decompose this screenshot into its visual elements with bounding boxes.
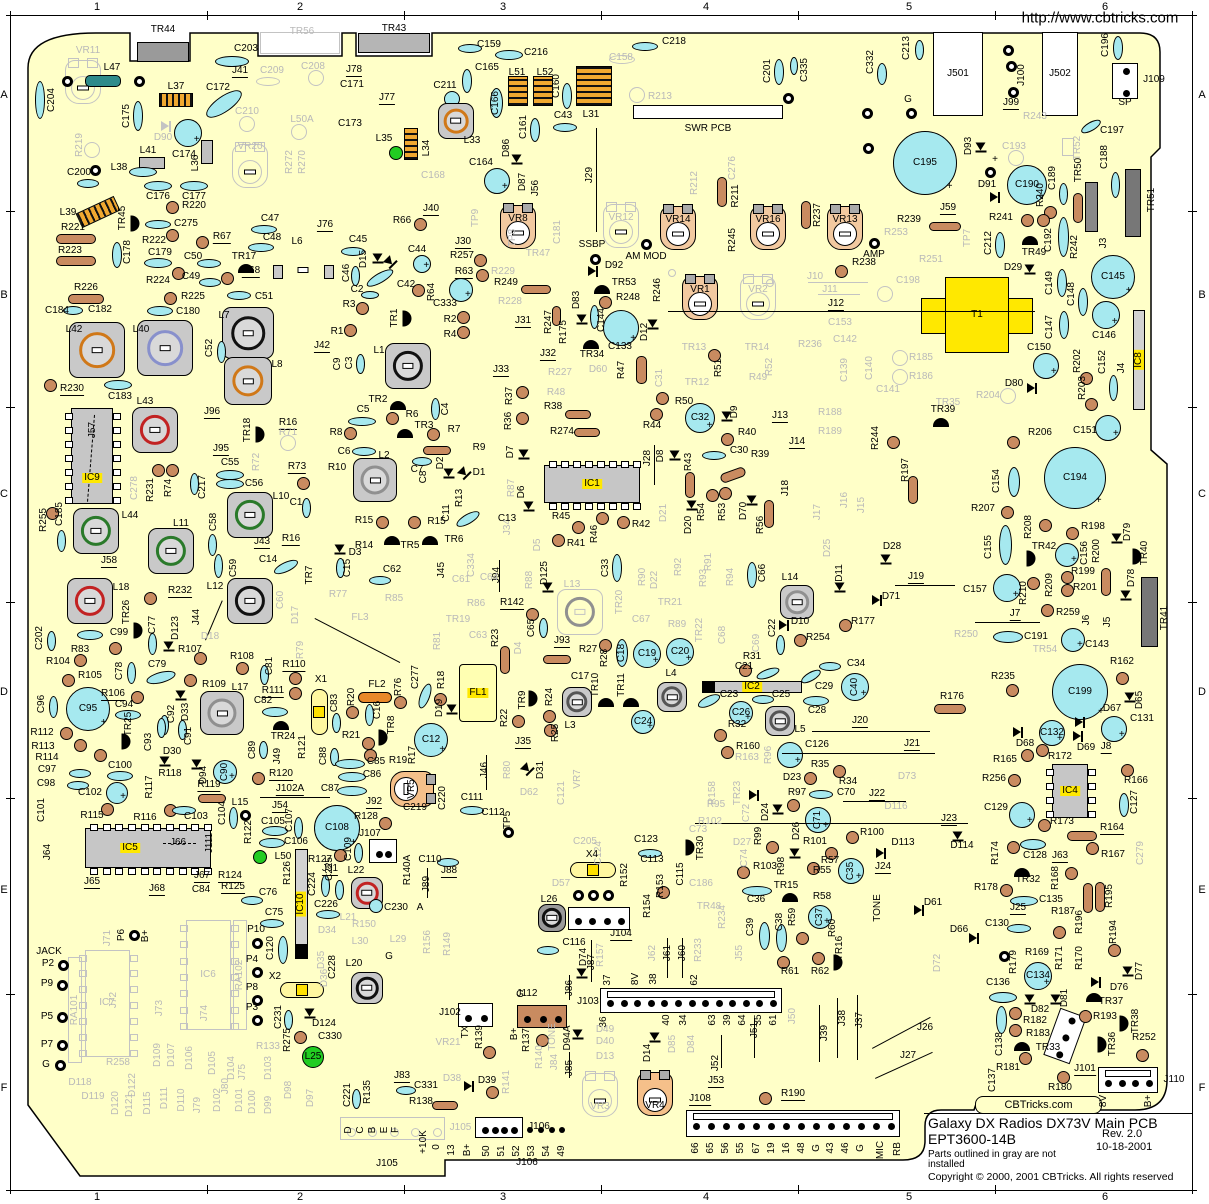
- grid-border: [798, 1185, 799, 1194]
- label-d29: D29: [1004, 263, 1022, 273]
- comp-cap-753: [1119, 793, 1129, 817]
- comp-r190-689: [759, 1092, 772, 1105]
- label-r199: R199: [1071, 567, 1095, 577]
- label-l25: L25: [305, 1052, 322, 1062]
- grid-col-1: 1: [94, 1, 100, 13]
- label-l15: L15: [232, 798, 249, 808]
- comp-r164-813: [1067, 831, 1097, 841]
- label-r224: R224: [146, 276, 170, 286]
- label-r258: R258: [106, 1058, 130, 1068]
- label-r103: R103: [753, 862, 777, 872]
- label-r112: R112: [30, 728, 53, 738]
- comp-ic5-333: [85, 828, 211, 868]
- grid-row-B: B: [0, 289, 7, 301]
- comp-r208-774: [1039, 519, 1052, 532]
- label-r195: R195: [1105, 884, 1115, 908]
- label-j76: J76: [317, 220, 333, 232]
- label-l8: L8: [271, 360, 282, 370]
- label-c93: C93: [144, 733, 154, 751]
- comp-r194-827: [1108, 944, 1121, 957]
- comp-r50-548: [656, 392, 669, 405]
- comp-pad-155: [590, 254, 601, 265]
- comp-c5-219: [348, 417, 376, 426]
- label-r3: R3: [343, 300, 356, 310]
- label-j78: J78: [346, 65, 362, 77]
- label-b+: B+: [1144, 1095, 1154, 1108]
- label-d106: D106: [185, 1046, 195, 1070]
- label-r22: R22: [500, 709, 510, 727]
- label-r108: R108: [230, 652, 254, 662]
- label-r110: R110: [282, 660, 305, 672]
- label-j96: J96: [204, 407, 220, 419]
- label-d31: D31: [536, 761, 546, 779]
- label-c34: C34: [847, 659, 865, 669]
- label-c153: C153: [828, 318, 852, 328]
- label-j26: J26: [917, 1023, 933, 1033]
- comp-tr39-755: [933, 418, 949, 427]
- comp-r138-735: [432, 1101, 458, 1110]
- label-j30: J30: [455, 237, 471, 249]
- comp-d23-464: [749, 790, 761, 801]
- comp-l26-655: [538, 904, 566, 932]
- label-c108: C108: [325, 823, 349, 833]
- comp-d33-289: [176, 690, 187, 702]
- label-c95: C95: [79, 704, 97, 714]
- label-c56: C56: [245, 479, 263, 489]
- label-g: G: [385, 952, 393, 962]
- comp-d113-478: [876, 848, 888, 859]
- grid-col-5: 5: [906, 1191, 912, 1203]
- label-d33: D33: [181, 703, 191, 721]
- label-ic2: IC2: [742, 682, 762, 692]
- label-j106: J106: [516, 1158, 538, 1168]
- label-r239: R239: [897, 215, 921, 225]
- comp-l51-52: [508, 76, 528, 106]
- label-39: 39: [723, 1014, 733, 1025]
- comp-pad-370: [129, 930, 140, 941]
- comp-d68-803: [1013, 727, 1025, 738]
- label-j89: J89: [422, 876, 432, 892]
- label-c138: C138: [995, 1032, 1005, 1056]
- comp-l37-10: [159, 93, 193, 107]
- label-c120: C120: [266, 936, 276, 960]
- grid-border: [1188, 994, 1197, 995]
- label-r174: R174: [991, 841, 1001, 865]
- comp-c191-793: [993, 631, 1023, 643]
- label-l4: L4: [665, 669, 676, 679]
- label-j24: J24: [875, 862, 891, 874]
- label-c106: C106: [284, 837, 308, 847]
- label-r167: R167: [1101, 850, 1125, 860]
- label-c276: C276: [728, 156, 738, 180]
- label-r207: R207: [971, 504, 995, 514]
- label-c180: C180: [176, 307, 200, 317]
- label-tr17: TR17: [232, 252, 256, 262]
- label-c201: C201: [763, 59, 773, 83]
- comp-l17-294: [200, 691, 244, 735]
- comp-c34-440: [819, 662, 841, 671]
- grid-col-3: 3: [500, 1, 506, 13]
- label-r7: R7: [448, 425, 461, 435]
- label-p10: P10: [247, 925, 265, 935]
- comp-pad-67: [863, 143, 874, 154]
- comp-tr34-562: [583, 340, 599, 349]
- label-f: F: [391, 1127, 401, 1133]
- label-r242: R242: [1070, 235, 1080, 259]
- comp-r41-517: [552, 534, 565, 547]
- grid-col-1: 1: [94, 1191, 100, 1203]
- label-j100: J100: [1017, 64, 1027, 86]
- label-d9: D9: [730, 406, 740, 419]
- comp-c174-14: +: [174, 119, 202, 147]
- label-65: 65: [706, 1142, 716, 1153]
- label-tr44: TR44: [151, 25, 175, 35]
- label-r90: R90: [638, 568, 648, 586]
- label-r50: R50: [675, 397, 693, 407]
- label-52: 52: [512, 1145, 522, 1156]
- label-tr24: TR24: [271, 732, 295, 742]
- label-r168: R168: [1051, 866, 1061, 890]
- label-d66: D66: [950, 925, 968, 935]
- label-jack: JACK: [36, 947, 62, 957]
- comp-tr44-5: [137, 42, 189, 62]
- comp-c6-223: [352, 447, 376, 456]
- label-ic8: IC8: [1134, 350, 1144, 370]
- label-tr50: TR50: [1074, 158, 1084, 182]
- comp-c66-531: [747, 562, 757, 588]
- comp-c150-108: +: [1033, 353, 1059, 379]
- label-j27: J27: [900, 1051, 916, 1061]
- label-x4: X4: [586, 850, 598, 860]
- grid-border: [207, 1185, 208, 1194]
- label-r180: R180: [1048, 1083, 1072, 1093]
- comp-c331-734: [396, 1086, 416, 1095]
- grid-border: [1188, 407, 1197, 408]
- label-c65: C65: [527, 619, 537, 637]
- label-c109: C109: [344, 837, 354, 861]
- label-c8: C8: [419, 471, 429, 484]
- label-d80: D80: [1005, 379, 1023, 389]
- label-c173: C173: [338, 119, 362, 129]
- grid-border: [1188, 602, 1197, 603]
- label-r190: R190: [781, 1089, 805, 1101]
- label-r175: R175: [559, 320, 569, 344]
- label-c154: C154: [992, 469, 1002, 493]
- label-r28: R28: [600, 649, 610, 667]
- comp-c131-801: +: [1101, 716, 1127, 742]
- label-40: 40: [662, 1014, 672, 1025]
- label-j49: J49: [273, 748, 283, 764]
- label-c2: C2: [351, 285, 364, 295]
- comp-r32-449: [714, 729, 727, 742]
- label-r202: R202: [1073, 349, 1083, 373]
- label-c126: C126: [805, 740, 829, 750]
- label-l12: L12: [207, 582, 224, 592]
- comp-r207-772: [1001, 506, 1014, 519]
- label-r228: R228: [498, 297, 522, 307]
- label-d61: D61: [924, 898, 942, 908]
- comp-r120-323: [252, 772, 265, 785]
- label-r247: R247: [544, 310, 554, 334]
- label-r20: R20: [347, 688, 357, 706]
- comp-c30-554: [702, 451, 726, 460]
- label-r27: R27: [579, 645, 597, 655]
- label-r141: R141: [502, 1070, 512, 1094]
- comp-c2-198: [361, 291, 379, 299]
- label-r99: R99: [754, 827, 764, 845]
- label-c1: C1: [290, 498, 303, 508]
- label-c278: C278: [130, 476, 140, 500]
- label-c208: C208: [301, 62, 325, 72]
- comp-r206-769: [1007, 436, 1020, 449]
- comp-c152-111: [1109, 375, 1118, 401]
- trace-line-7: [975, 622, 1040, 623]
- label-tr52: TR52: [1073, 136, 1083, 160]
- label-r203: R203: [1078, 376, 1088, 400]
- comp-pad-356: [252, 938, 263, 949]
- label-c219: C219: [403, 803, 427, 813]
- comp-r238-162: [835, 265, 848, 278]
- label-r121: R121: [298, 735, 308, 759]
- grid-border: [404, 11, 405, 20]
- comp-tr30-641: [686, 839, 695, 855]
- label-r1: R1: [331, 327, 344, 337]
- label-d98: D98: [284, 1081, 294, 1099]
- label-r165: R165: [993, 755, 1017, 765]
- comp-pad-83: [985, 167, 996, 178]
- label-c217: C217: [198, 475, 208, 499]
- comp-d29-98: [1025, 264, 1036, 276]
- label-c110: C110: [418, 855, 441, 865]
- label-d92: D92: [605, 261, 623, 271]
- comp-c70-468: [809, 790, 833, 799]
- comp-c226-352: [316, 910, 340, 919]
- label-c43: C43: [554, 111, 572, 121]
- label-p6: P6: [117, 929, 127, 941]
- label-c5: C5: [357, 405, 370, 415]
- label-tr34: TR34: [580, 350, 604, 360]
- label-d120: D120: [111, 1091, 121, 1115]
- label-j20: J20: [852, 716, 868, 728]
- label-d21: D21: [659, 504, 669, 522]
- label-r250: R250: [954, 630, 978, 640]
- label-l40: L40: [133, 325, 150, 335]
- grid-col-2: 2: [297, 1, 303, 13]
- label-r229: R229: [491, 267, 515, 277]
- label-j32: J32: [540, 349, 556, 361]
- comp-l7-187: [222, 307, 274, 359]
- grid-row-C: C: [1198, 488, 1206, 500]
- trace-line-1: [596, 128, 597, 232]
- label-a: A: [417, 903, 424, 913]
- label-j93: J93: [554, 636, 570, 648]
- comp-c143-795: +: [1061, 628, 1085, 652]
- trace-line-11: [837, 998, 838, 1058]
- label-c30: C30: [730, 446, 748, 456]
- comp-x1-295: [311, 689, 328, 735]
- label-r231: R231: [146, 478, 156, 502]
- label-j28: J28: [643, 450, 653, 466]
- comp-d78-784: [1121, 590, 1132, 602]
- label-vr7: VR7: [573, 769, 583, 788]
- comp-tr6-587: [422, 536, 438, 545]
- comp-diode-196: [383, 254, 399, 270]
- label-r104: R104: [46, 657, 70, 667]
- label-l42: L42: [66, 325, 83, 335]
- comp-pad-70: [1003, 45, 1014, 56]
- label-c60: C60: [276, 591, 286, 609]
- label-c89: C89: [248, 741, 258, 759]
- label-r149: R149: [443, 932, 453, 956]
- label-r113: R113: [31, 742, 54, 752]
- label-j68: J68: [149, 884, 165, 896]
- label-16: 16: [782, 1142, 792, 1153]
- label-vr8: VR8: [508, 214, 527, 224]
- label-l17: L17: [232, 683, 249, 693]
- comp-pad-71: [1006, 61, 1017, 72]
- comp-c99-279: [77, 630, 103, 640]
- label-r249: R249: [494, 278, 518, 288]
- label-r248: R248: [616, 293, 640, 303]
- comp-c200-19: [77, 179, 99, 188]
- label-c28: C28: [808, 706, 826, 716]
- comp-r42-516: [617, 516, 630, 529]
- label-l35: L35: [376, 134, 393, 144]
- label-c98: C98: [37, 779, 55, 789]
- label-61: 61: [769, 1014, 779, 1025]
- label-l50a: L50A: [290, 115, 313, 125]
- trace-line-24: [260, 797, 330, 798]
- label-j60: J60: [678, 945, 688, 961]
- label-r122: R122: [244, 820, 254, 844]
- comp-c213-62: [915, 40, 924, 60]
- label-r140: R140: [535, 1045, 545, 1069]
- comp-x2-364: [280, 982, 324, 998]
- comp-pad-391: [55, 1060, 66, 1071]
- label-r42: R42: [632, 520, 650, 530]
- comp-c89-298: [259, 741, 268, 759]
- label-r32: R32: [728, 720, 746, 730]
- label-j72: J72: [109, 992, 119, 1008]
- label-r85: R85: [385, 594, 403, 604]
- label-b+: B+: [141, 930, 151, 943]
- label-c218: C218: [662, 37, 686, 47]
- label-r212: R212: [690, 171, 700, 195]
- label-d125: D125: [540, 561, 550, 585]
- label-c188: C188: [1100, 145, 1110, 169]
- trace-line-8: [721, 1035, 722, 1068]
- comp-d1-228: [457, 465, 473, 481]
- comp-r193-850: [1079, 1010, 1092, 1023]
- grid-row-D: D: [1198, 686, 1206, 698]
- label-tr18: TR18: [243, 418, 253, 442]
- label-37: 37: [603, 974, 613, 985]
- label-c186: C186: [689, 879, 713, 889]
- label-r96: R96: [764, 746, 774, 764]
- comp-r256-808: [1008, 774, 1021, 787]
- comp-pad-3: [62, 76, 73, 87]
- label-tr8: TR8: [387, 716, 397, 735]
- label-j75: J75: [238, 1064, 248, 1080]
- label-c151: C151: [1073, 426, 1097, 436]
- label-+: +: [992, 155, 998, 165]
- label-r225: R225: [181, 292, 205, 302]
- label-r61: R61: [781, 967, 799, 977]
- label-tr37: TR37: [1099, 997, 1123, 1007]
- comp-r244-754: [887, 436, 900, 449]
- grid-col-3: 3: [500, 1191, 506, 1203]
- comp-l20-746: [351, 972, 383, 1004]
- label-tone: TONE: [873, 894, 883, 922]
- title-line2: EPT3600-14B: [928, 1131, 1016, 1147]
- label-j29: J29: [585, 167, 595, 183]
- label-56: 56: [721, 1142, 731, 1153]
- label-j501: J501: [947, 69, 969, 79]
- comp-pad-66: [862, 108, 873, 119]
- label-tr47: TR47: [526, 249, 550, 259]
- grid-col-5: 5: [906, 1, 912, 13]
- label-r25: R25: [551, 724, 561, 742]
- grid-row-D: D: [0, 686, 8, 698]
- title-rev: Rev. 2.0: [1102, 1128, 1142, 1140]
- comp-c21-437: [755, 665, 781, 682]
- label-j104: J104: [610, 929, 632, 941]
- label-c166: C166: [491, 91, 501, 115]
- label-d83: D83: [572, 291, 582, 309]
- label-r208: R208: [1024, 515, 1034, 539]
- comp-r40-553: [721, 433, 734, 446]
- label-r177: R177: [851, 617, 875, 627]
- comp-l34-39: [404, 128, 418, 160]
- comp-res-863: [1073, 193, 1083, 223]
- label-c19: C19: [638, 649, 656, 659]
- label-d69: D69: [1077, 743, 1095, 753]
- label-d8: D8: [656, 450, 666, 463]
- label-19: 19: [767, 1142, 777, 1153]
- grid-row-A: A: [1198, 89, 1205, 101]
- label-r6: R6: [406, 410, 419, 420]
- comp-pad-654: [603, 890, 614, 901]
- comp-vr13-148: [827, 206, 863, 250]
- label-j66: J66: [170, 838, 186, 848]
- label-c179: C179: [148, 248, 172, 258]
- label-r252: R252: [1132, 1033, 1156, 1043]
- comp-tr3-218: [397, 429, 413, 438]
- label-0: 0: [432, 1144, 442, 1150]
- label-d105: D105: [208, 1051, 218, 1075]
- label-c168: C168: [421, 171, 445, 181]
- label-d6: D6: [517, 486, 527, 499]
- comp-c126-458: +: [777, 742, 803, 768]
- label-8v: 8V: [1099, 1095, 1109, 1107]
- comp-r104-283: [74, 654, 87, 667]
- label-r186: R186: [909, 372, 933, 382]
- label-r101: R101: [803, 837, 827, 847]
- label-66: 66: [691, 1142, 701, 1153]
- comp-vr8-140: [500, 205, 536, 249]
- label-r164: R164: [1100, 823, 1124, 835]
- comp-c100-315: [107, 771, 133, 781]
- comp-l4-454: [657, 682, 687, 712]
- label-c210: C210: [235, 107, 259, 117]
- label-x1: X1: [315, 675, 327, 685]
- label-tr39: TR39: [931, 405, 955, 415]
- label-r73: R73: [288, 462, 306, 474]
- comp-d123-280: [164, 641, 175, 653]
- comp-pad-161: [869, 238, 880, 249]
- label-tr23: TR23: [733, 781, 743, 805]
- comp-r183-842: [1009, 1024, 1022, 1037]
